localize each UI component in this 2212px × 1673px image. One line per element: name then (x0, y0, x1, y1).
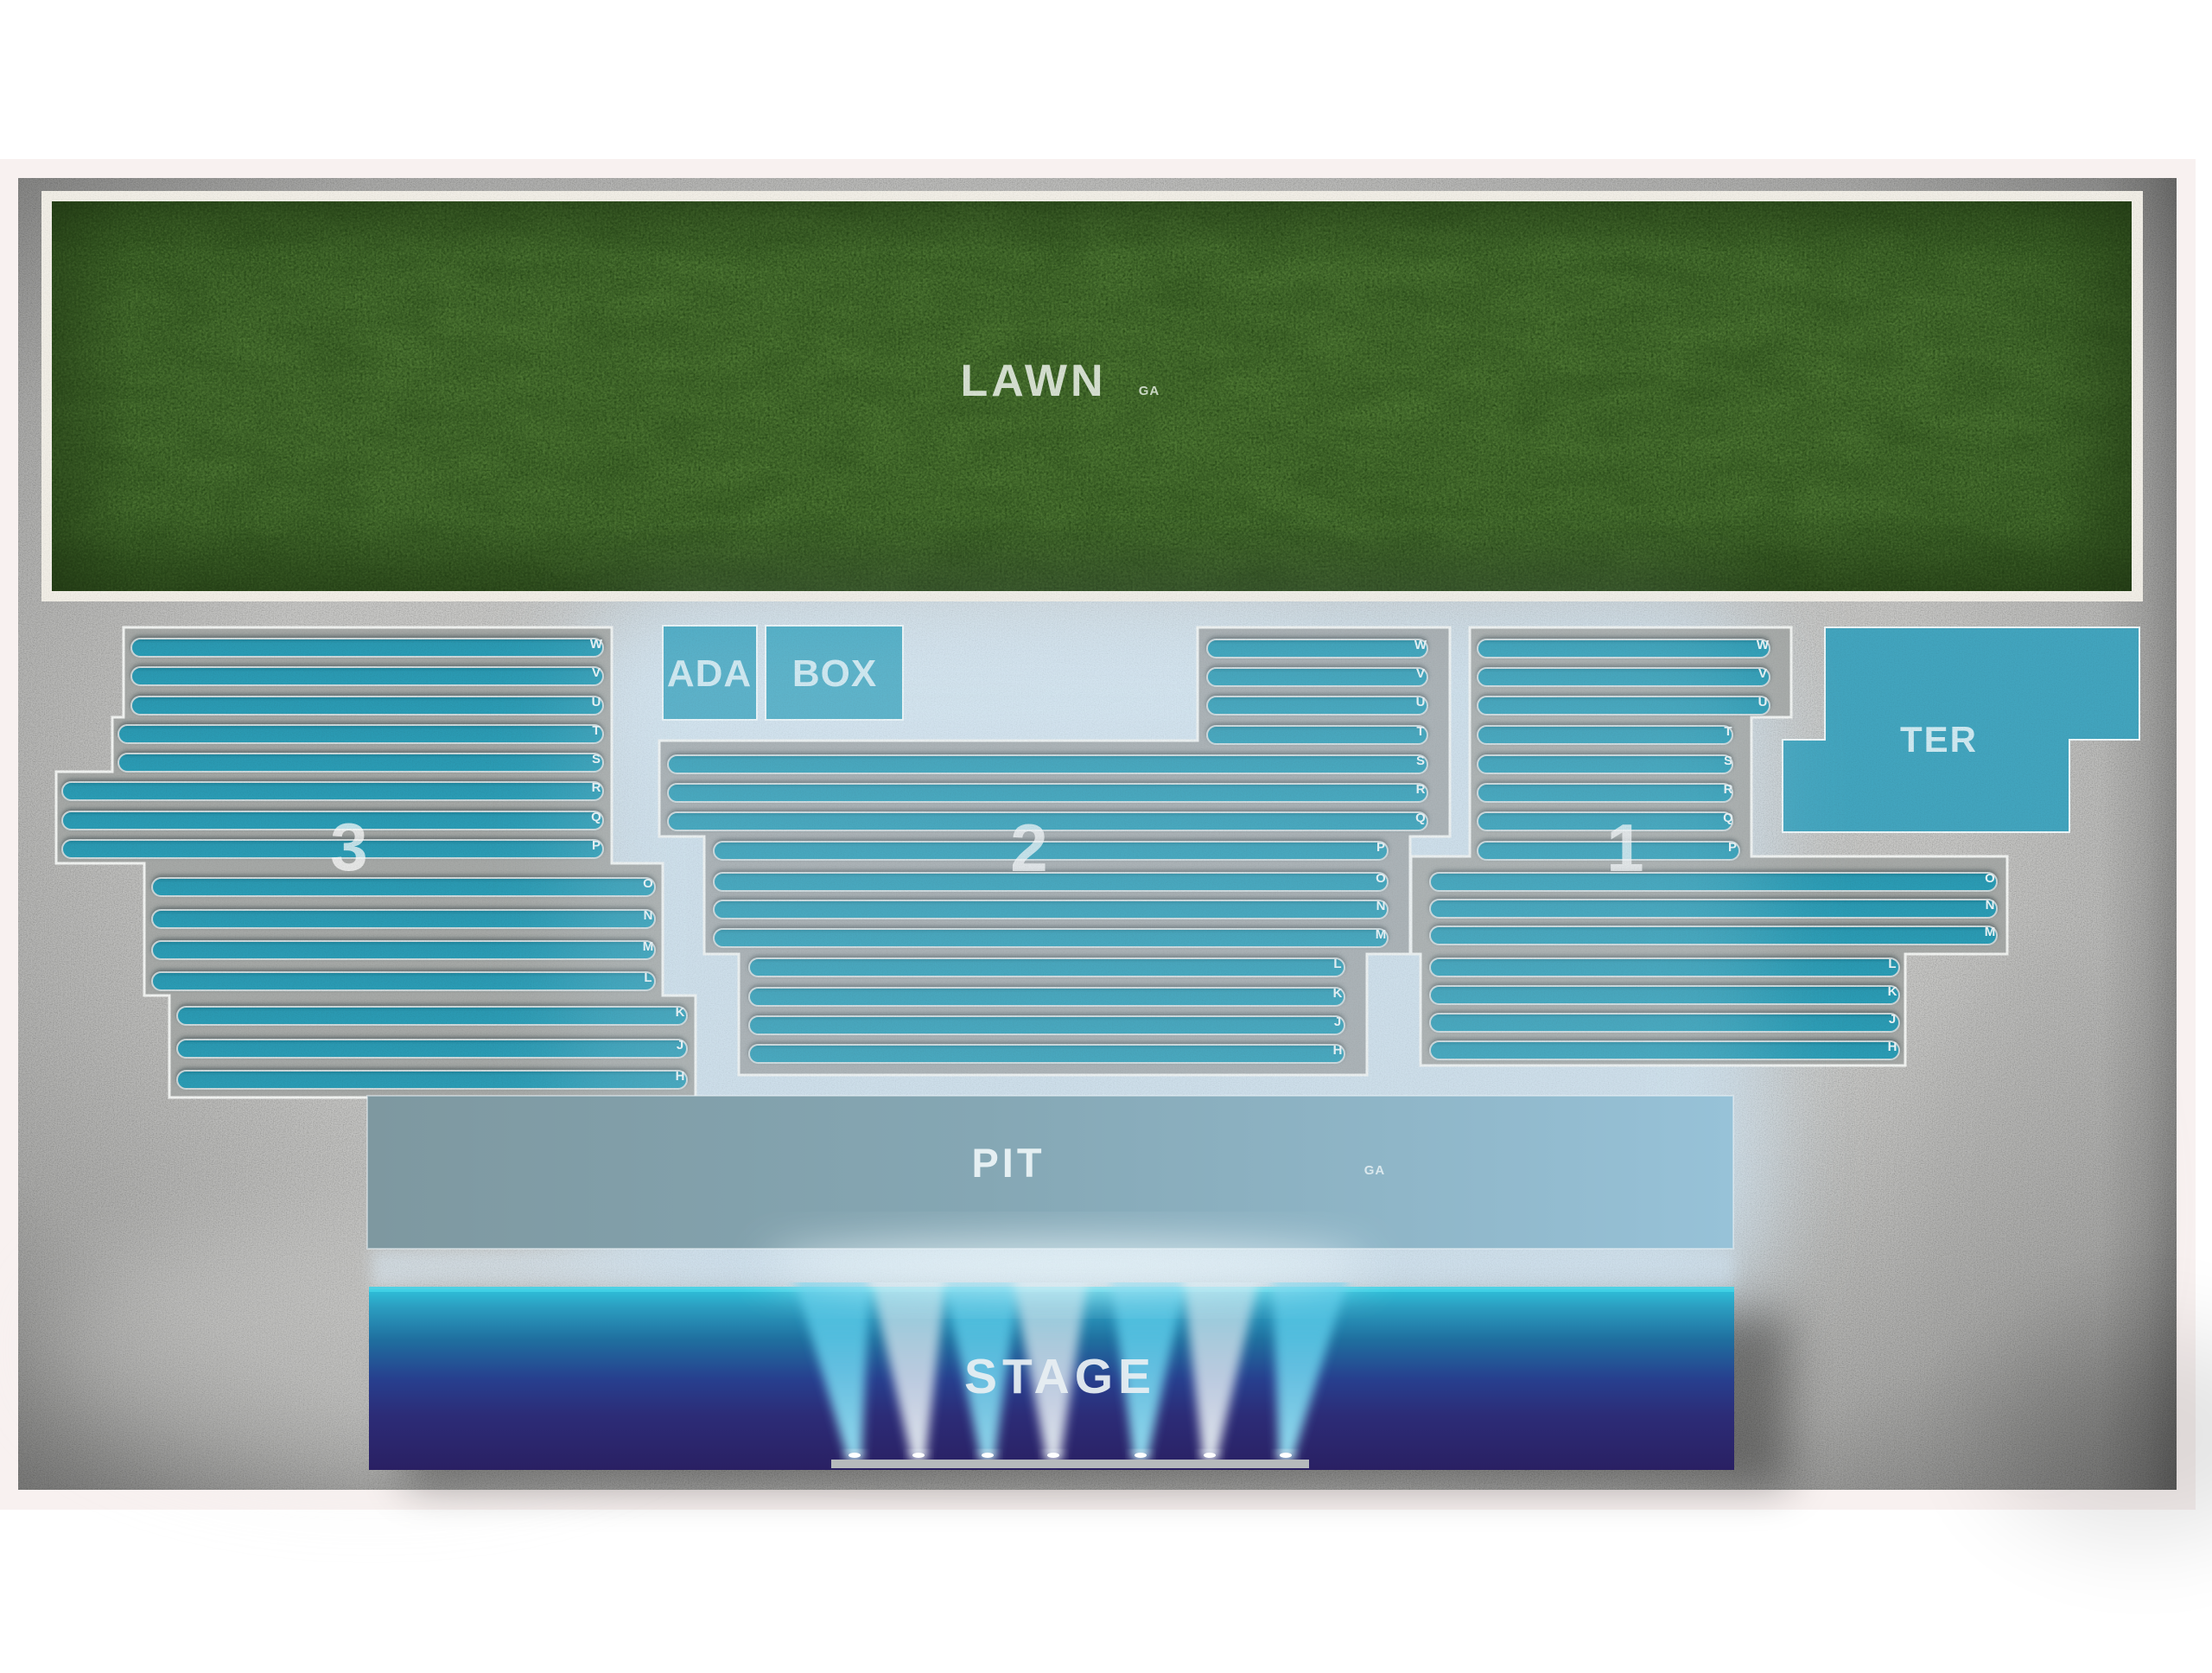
svg-text:STAGE: STAGE (964, 1349, 1156, 1404)
svg-text:PIT: PIT (971, 1140, 1045, 1186)
svg-text:GA: GA (1364, 1163, 1386, 1178)
